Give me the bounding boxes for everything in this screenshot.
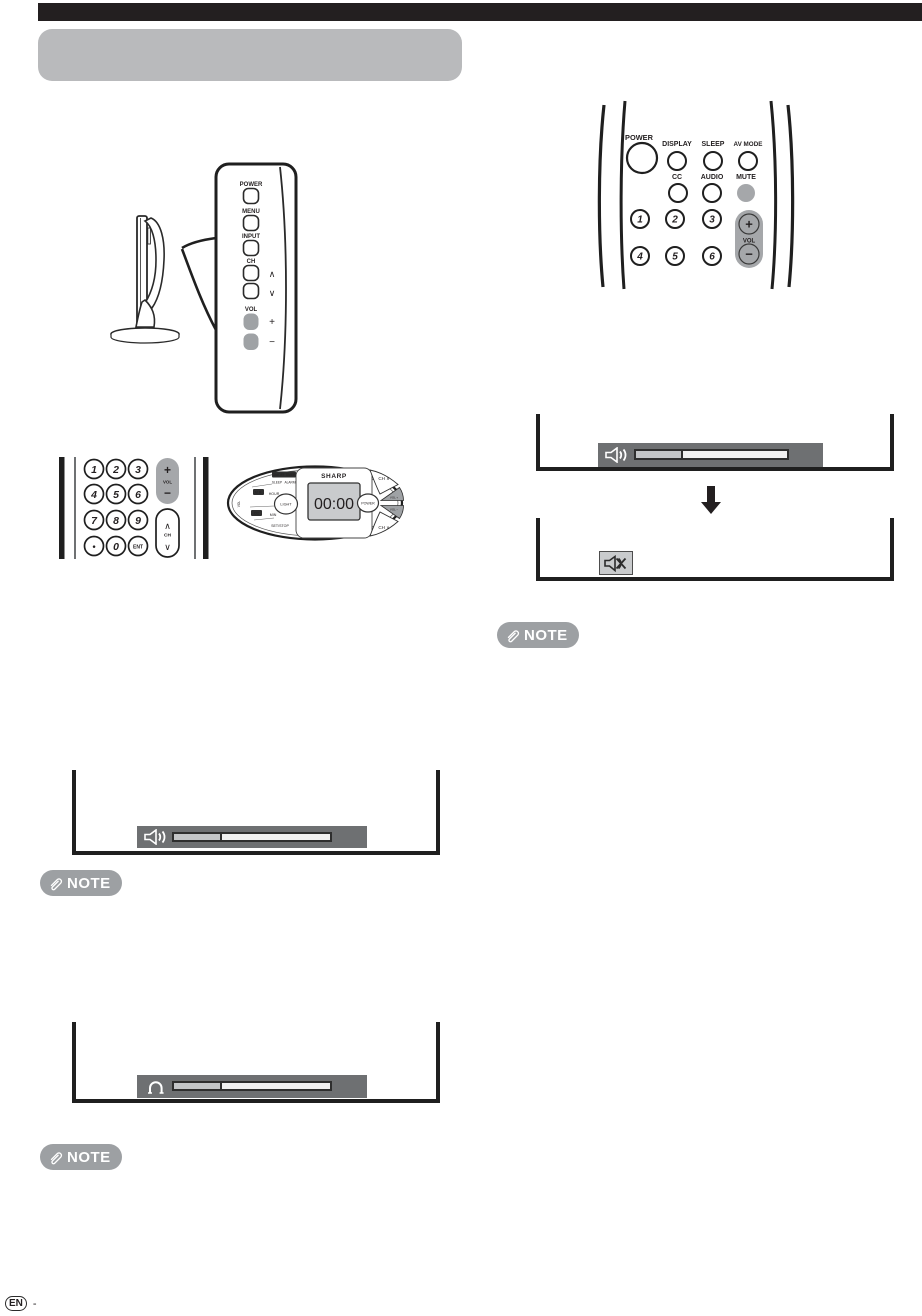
light-label: LIGHT <box>280 503 292 507</box>
input-label: INPUT <box>242 234 260 240</box>
vol-minus-icon: − <box>745 247 753 262</box>
digit-8: 8 <box>113 515 119 527</box>
audio-button <box>703 184 721 202</box>
remote-edge-right-outer <box>788 105 793 287</box>
note-label: NOTE <box>67 1149 111 1166</box>
mute-label: MUTE <box>736 174 756 181</box>
minus-icon: − <box>269 337 275 348</box>
paperclip-icon <box>504 627 521 644</box>
vol-plus-icon: + <box>745 217 753 232</box>
volume-bar <box>172 832 332 842</box>
dot-button: • <box>92 542 95 552</box>
volume-bar-fill <box>174 834 222 840</box>
sleep-button <box>704 152 722 170</box>
speaker-volume-icon <box>604 447 630 463</box>
volume-osd <box>598 443 823 467</box>
vol-minus-button <box>244 334 259 351</box>
av-mode-button <box>739 152 757 170</box>
digit-6: 6 <box>135 489 141 501</box>
ent-button: ENT <box>133 544 143 550</box>
cc-button <box>669 184 687 202</box>
ch-up-icon: ∧ <box>269 269 276 279</box>
display-label: DISPLAY <box>662 141 692 148</box>
speaker-volume-icon <box>143 829 169 845</box>
speaker-muted-icon <box>604 555 628 572</box>
arrow-down-icon <box>701 486 721 515</box>
power-button <box>244 189 259 204</box>
tv-screen-volume-left <box>72 770 440 855</box>
tv-screen-volume <box>536 414 894 471</box>
input-button <box>244 241 259 256</box>
power-label: POWER <box>625 133 654 142</box>
ch-down-icon: ∨ <box>269 288 276 298</box>
note-badge: NOTE <box>40 870 122 896</box>
digit-3: 3 <box>135 464 141 476</box>
ch-up-icon: ∧ <box>164 521 171 531</box>
menu-label: MENU <box>242 209 260 215</box>
note-label: NOTE <box>67 875 111 892</box>
display-button <box>668 152 686 170</box>
set-stop-label: SET/STOP <box>271 524 289 528</box>
keypad-digits: 1 2 3 4 5 6 7 8 9 • 0 ENT <box>85 460 148 556</box>
note-badge: NOTE <box>497 622 579 648</box>
plus-icon: + <box>269 317 275 328</box>
vol-rocker-label: VOL <box>163 480 172 485</box>
remote-edge-left-inner <box>621 101 625 289</box>
ch-up-button <box>244 266 259 281</box>
paperclip-icon <box>47 1149 64 1166</box>
mute-button <box>737 184 755 202</box>
side-buttons-strip <box>148 228 151 244</box>
top-rule <box>38 3 922 21</box>
vol-minus-label: VOL − <box>390 508 398 512</box>
remote-edge-left-outer <box>59 457 65 559</box>
digit-1: 1 <box>91 464 97 476</box>
digit-6: 6 <box>709 252 715 263</box>
ch-down-button <box>244 284 259 299</box>
sleep-label: SLEEP <box>272 481 282 485</box>
digit-5: 5 <box>113 489 119 501</box>
section-title-box <box>38 29 462 81</box>
digit-2: 2 <box>671 215 678 226</box>
vol-plus-label: VOL + <box>390 496 398 500</box>
audio-label: AUDIO <box>701 174 724 181</box>
ch-rocker-label: CH <box>164 533 171 539</box>
av-mode-label: AV MODE <box>734 141 763 148</box>
oval-remote-figure: SHARP 00:00 VOL ON/OFF TIMER SLEEP ALARM… <box>222 460 408 550</box>
power-button <box>627 143 657 173</box>
volume-bar <box>634 449 789 460</box>
ch-down-label: CH ∨ <box>378 525 390 530</box>
digit-buttons: 1 2 3 4 5 6 <box>631 210 721 265</box>
language-badge: EN <box>5 1296 27 1311</box>
remote-keypad-figure: 1 2 3 4 5 6 7 8 9 • 0 ENT + VOL − ∧ CH ∨ <box>50 445 220 575</box>
hour-label: HOUR <box>269 492 280 496</box>
tv-side-sketch <box>111 216 179 343</box>
mute-osd <box>599 551 633 575</box>
cc-label: CC <box>672 174 682 181</box>
note-label: NOTE <box>524 627 568 644</box>
min-label: MIN <box>270 513 277 517</box>
volume-bar-fill <box>174 1083 222 1089</box>
volume-bar <box>172 1081 332 1091</box>
power-label: POWER <box>240 182 263 188</box>
main-remote-figure: POWER DISPLAY SLEEP AV MODE CC AUDIO MUT… <box>565 95 805 290</box>
keypad-ch-rocker: ∧ CH ∨ <box>156 509 179 557</box>
remote-edge-left-outer <box>599 105 604 287</box>
digit-0: 0 <box>113 541 119 553</box>
page-footer: EN - <box>5 1296 37 1311</box>
volume-bar-fill <box>636 451 683 458</box>
vol-minus-icon: − <box>164 486 171 500</box>
keypad-vol-rocker: + VOL − <box>156 458 179 504</box>
digit-2: 2 <box>112 464 119 476</box>
tv-screen-headphone <box>72 1022 440 1103</box>
digit-3: 3 <box>709 215 715 226</box>
alarm-label: ALARM <box>285 481 296 485</box>
manual-page: POWER MENU INPUT CH ∧ ∨ VOL + − 1 2 <box>0 0 922 1316</box>
cc-label: CC <box>254 512 260 516</box>
digit-9: 9 <box>135 515 141 527</box>
vol-plus-icon: + <box>164 463 171 477</box>
callout-wedge <box>182 238 216 330</box>
volume-osd <box>137 826 367 848</box>
lcd-time: 00:00 <box>314 496 354 513</box>
remote-edge-right-inner <box>194 457 196 559</box>
digit-4: 4 <box>636 252 643 263</box>
sleep-label: SLEEP <box>702 141 725 148</box>
note-badge: NOTE <box>40 1144 122 1170</box>
vol-label: VOL <box>245 307 258 313</box>
ch-up-label: CH ∧ <box>378 476 390 481</box>
mb-label: M.B. <box>255 491 262 495</box>
headphone-osd <box>137 1075 367 1098</box>
remote-edge-right-outer <box>203 457 209 559</box>
tv-screen-mute <box>536 518 894 581</box>
ch-label: CH <box>247 259 256 265</box>
headphone-icon <box>146 1079 165 1095</box>
brand-logo: SHARP <box>321 473 347 480</box>
ch-down-icon: ∨ <box>164 542 171 552</box>
digit-5: 5 <box>672 252 678 263</box>
side-control-panel: POWER MENU INPUT CH ∧ ∨ VOL + − <box>216 164 296 412</box>
onoff-timer-label: ON/OFF TIMER <box>273 473 296 477</box>
remote-edge-left-inner <box>74 457 76 559</box>
menu-button <box>244 216 259 231</box>
digit-1: 1 <box>637 215 643 226</box>
vol-rocker: + VOL − <box>735 210 763 268</box>
side-vol-label: VOL <box>237 501 241 508</box>
vol-plus-button <box>244 314 259 331</box>
paperclip-icon <box>47 875 64 892</box>
power-label: POWER <box>361 502 375 506</box>
remote-edge-right-inner <box>771 101 776 289</box>
footer-dash: - <box>33 1298 37 1310</box>
tv-side-panel-figure: POWER MENU INPUT CH ∧ ∨ VOL + − <box>95 140 335 440</box>
digit-4: 4 <box>90 489 97 501</box>
